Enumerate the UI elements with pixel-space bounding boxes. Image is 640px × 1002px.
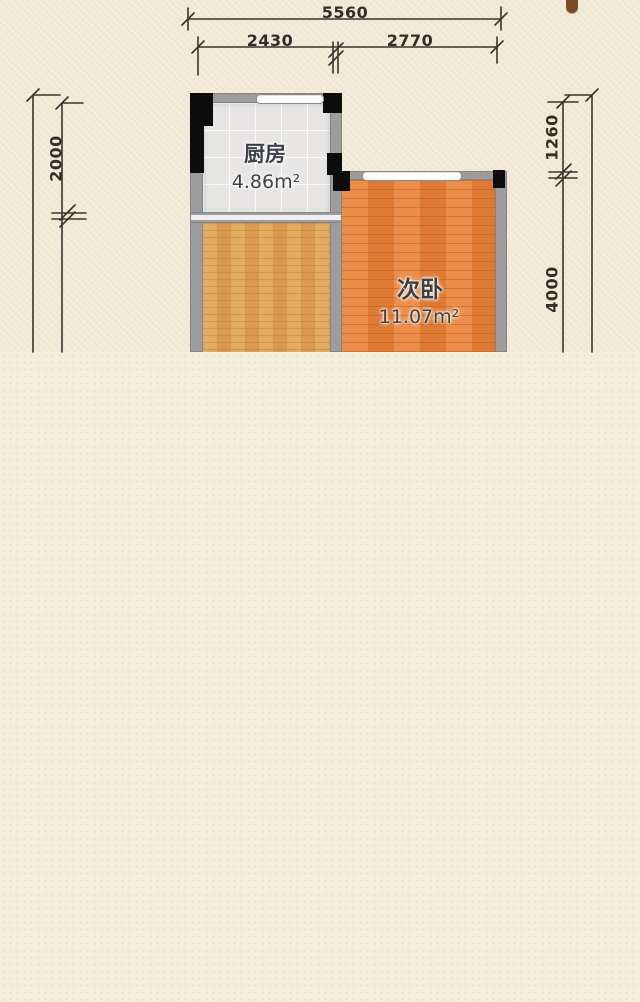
floor-plan: 5560 2430 2770 2000 1260 4000 厨房 4.86m² … — [0, 0, 640, 360]
dim-right-upper-segment: 1260 — [543, 98, 562, 178]
bedroom-name-label: 次卧 — [355, 270, 485, 304]
paper-background-lower — [0, 352, 640, 1002]
dim-top-total: 5560 — [305, 3, 385, 22]
bedroom-area-label: 11.07m² — [354, 306, 484, 328]
dim-top-left-segment: 2430 — [230, 31, 310, 50]
kitchen-name-label: 厨房 — [200, 138, 330, 168]
kitchen-area-label: 4.86m² — [201, 171, 331, 193]
dim-left-segment: 2000 — [47, 119, 66, 199]
dim-top-right-segment: 2770 — [370, 31, 450, 50]
dim-right-lower-segment: 4000 — [543, 250, 562, 330]
